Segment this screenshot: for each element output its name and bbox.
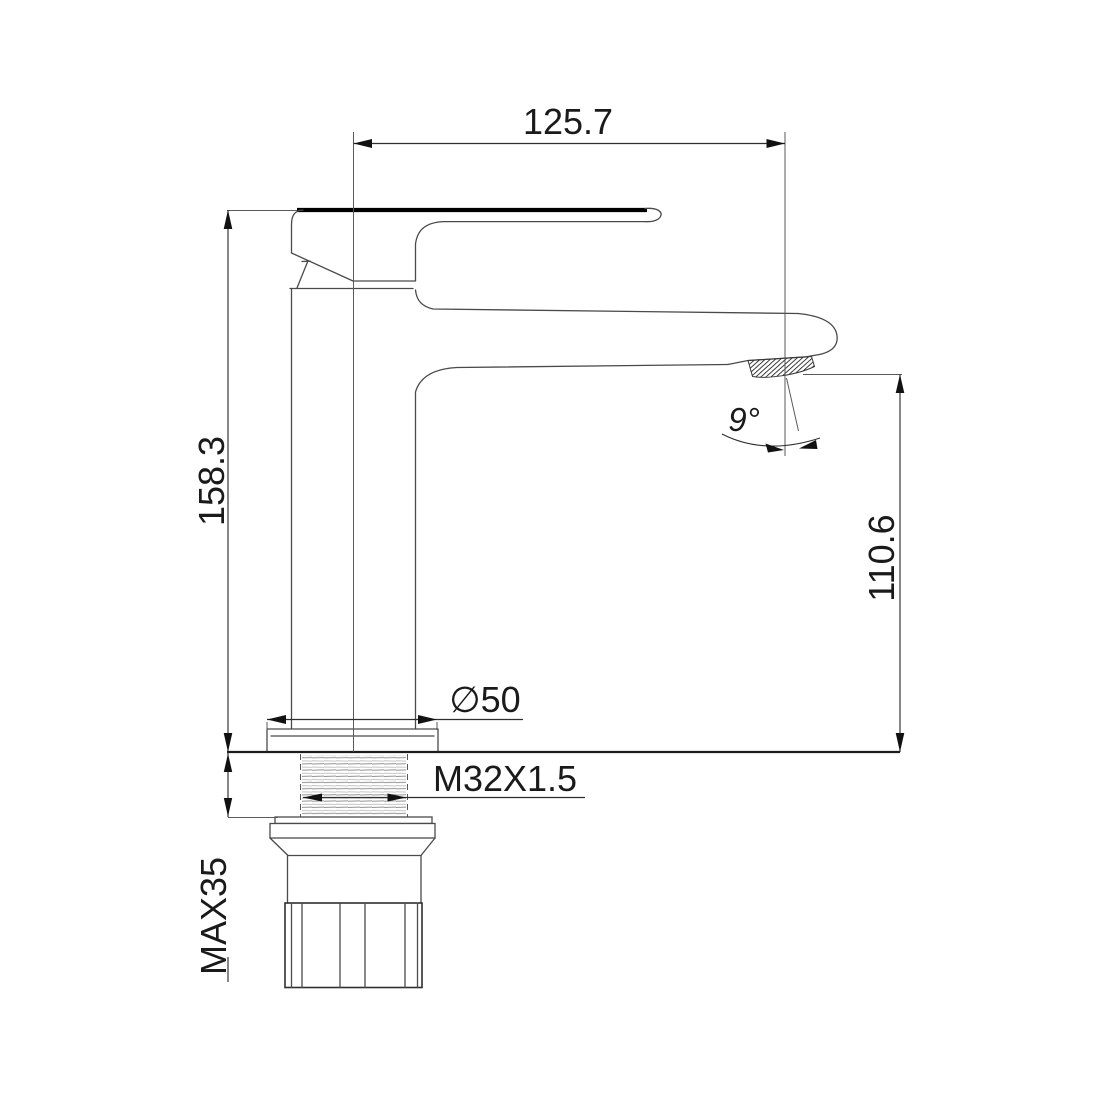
dim-label-outlet-angle: 9° [728,401,760,438]
thread-hatch [302,755,406,816]
drawing-background [0,0,1100,1100]
dim-label-max-deck: MAX35 [193,857,234,975]
nut-knurled-section [285,903,422,988]
dim-label-total-height: 158.3 [191,436,232,526]
dim-label-outlet-height: 110.6 [861,514,902,601]
technical-drawing-canvas: 125.7 158.3 110.6 9° ∅50 M32X1 [0,0,1100,1100]
nut-washer [275,817,432,824]
dim-label-thread: M32X1.5 [433,758,577,799]
faucet-dimension-drawing: 125.7 158.3 110.6 9° ∅50 M32X1 [0,0,1100,1100]
nut-flange [270,824,435,839]
dim-label-spout-reach: 125.7 [523,101,613,142]
dim-label-base-diameter: ∅50 [449,679,520,720]
